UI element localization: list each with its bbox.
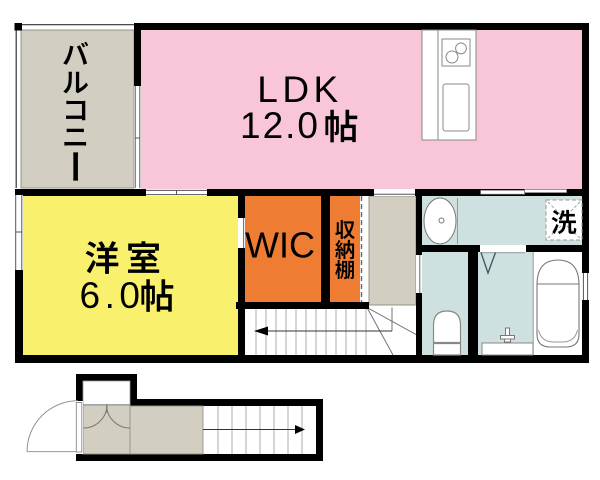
svg-text:12.0: 12.0 bbox=[240, 105, 320, 146]
svg-text:WIC: WIC bbox=[245, 225, 315, 266]
svg-text:6.0: 6.0 bbox=[80, 275, 145, 316]
svg-text:LDK: LDK bbox=[257, 69, 342, 110]
